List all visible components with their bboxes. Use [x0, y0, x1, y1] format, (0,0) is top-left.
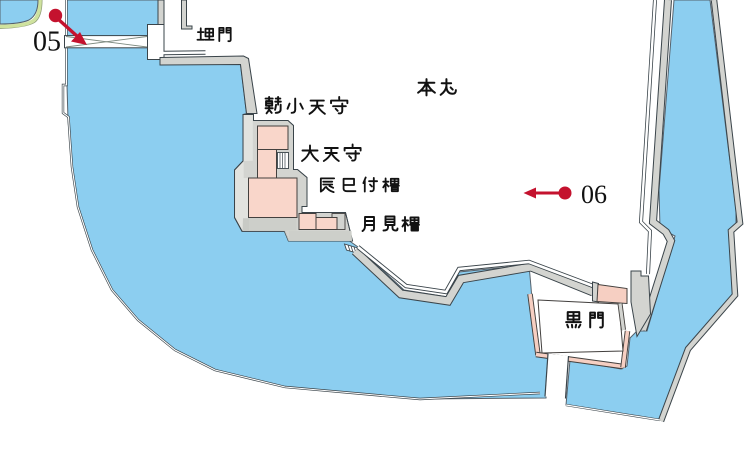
svg-text:06: 06 [581, 180, 607, 209]
svg-text:05: 05 [33, 27, 61, 58]
